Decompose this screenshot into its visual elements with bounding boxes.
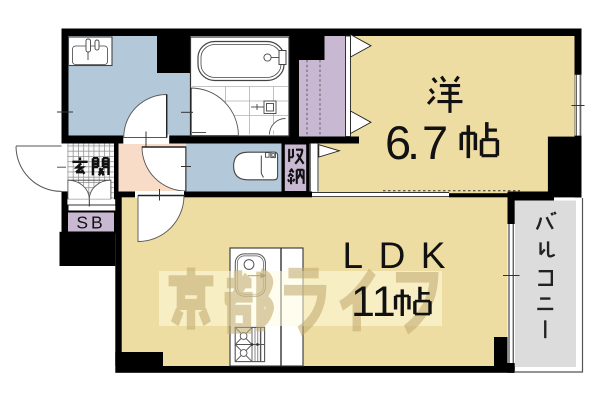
svg-text:SB: SB: [76, 213, 105, 233]
svg-text:.: .: [407, 116, 420, 169]
svg-text:7: 7: [422, 116, 448, 169]
svg-text:11: 11: [351, 278, 396, 326]
svg-text:LDK: LDK: [343, 235, 461, 276]
